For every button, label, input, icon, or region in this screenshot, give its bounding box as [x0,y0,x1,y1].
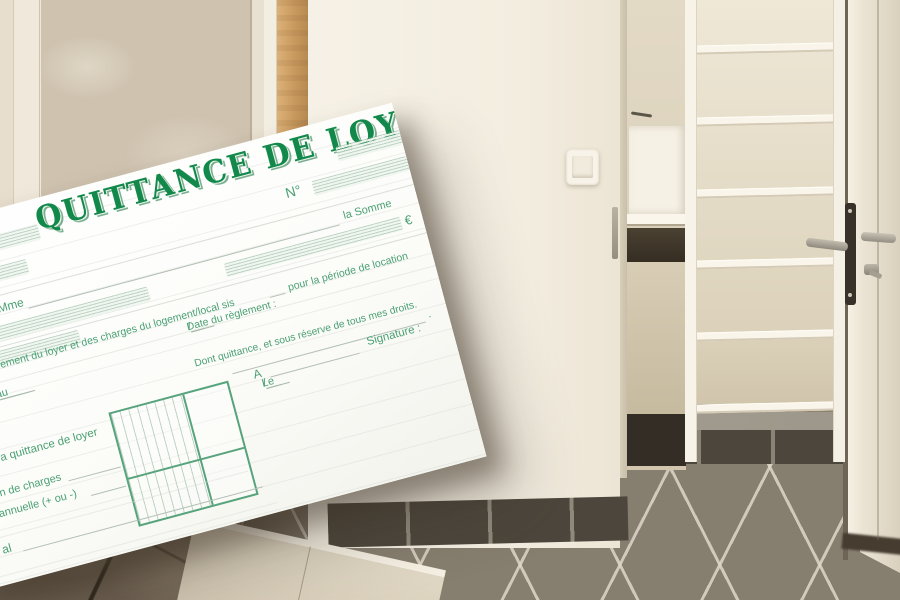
annual-blank-line [91,486,126,496]
closet-kick-shadow [627,414,686,466]
charges-blank-line [69,466,121,481]
lock-screw-icon [848,293,852,297]
cabinet-seam [286,546,311,600]
closet-counter-top [627,214,686,226]
scene: QUITTANCE DE LOYER N° Mme la Somme € eme… [0,0,900,600]
detail-label: a quittance de loyer [0,426,99,464]
open-door [860,0,900,600]
light-switch [566,149,599,185]
door-lock-strip [845,203,856,305]
closet-drawer-opening [627,228,686,262]
door-frame-strike-plate [612,207,618,259]
date-blank [0,383,29,400]
number-label: N° [284,182,303,202]
bookcase-right-upright [833,0,845,462]
wall-corner-edge [620,0,627,478]
sentence-dot: . [426,308,432,320]
bookcase-left-upright [685,0,697,462]
light-switch-rocker [572,156,593,178]
amount-detail-grid [108,381,258,527]
bookcase-interior [697,0,833,412]
closet-lower-panel [627,262,686,414]
total-label: al [0,541,13,557]
lock-screw-icon [848,209,852,213]
civility-label: Mme [0,295,25,315]
period-label: pour la période de location [287,250,410,294]
front-wall-baseboard [328,496,629,547]
signature-label: Signature : [365,322,422,348]
euro-sign: € [403,212,414,228]
closet-side-panel [629,126,686,214]
